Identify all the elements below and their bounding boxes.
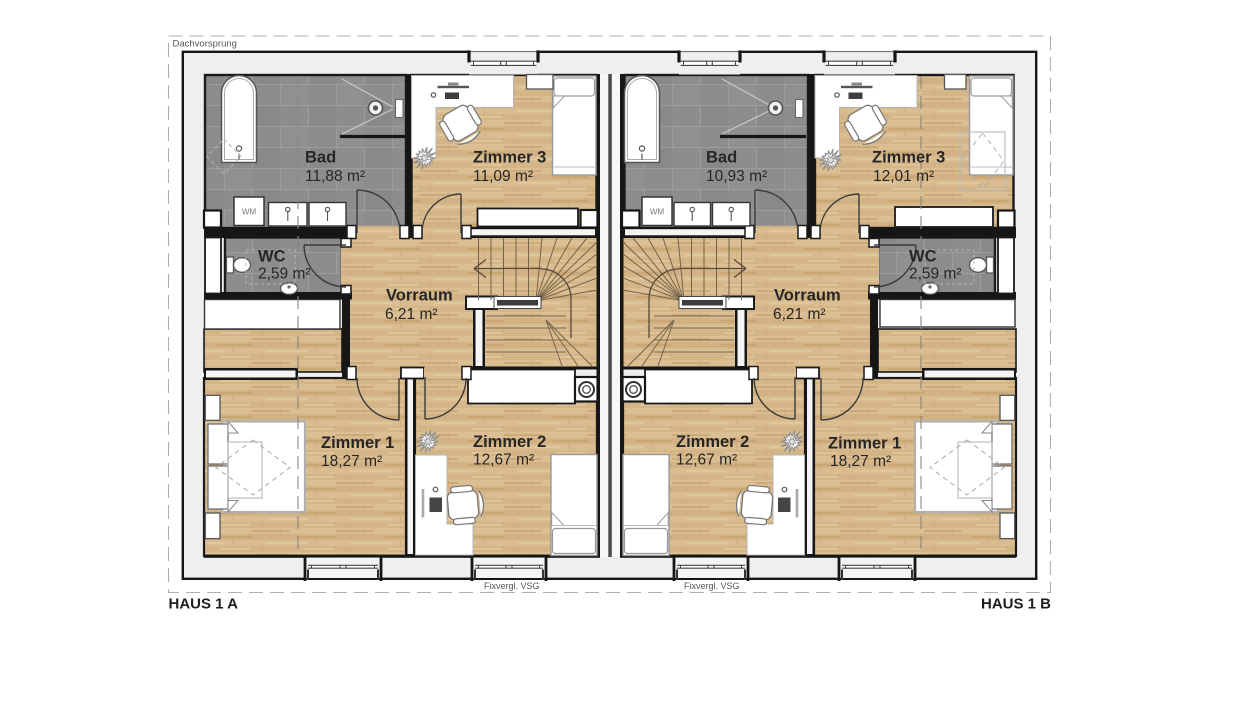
- svg-text:6,21 m²: 6,21 m²: [773, 306, 826, 323]
- svg-text:6,21 m²: 6,21 m²: [385, 306, 438, 323]
- svg-text:Zimmer 3: Zimmer 3: [872, 149, 945, 167]
- svg-text:12,67 m²: 12,67 m²: [473, 452, 534, 469]
- svg-text:Dachvorsprung: Dachvorsprung: [173, 39, 237, 50]
- svg-text:Bad: Bad: [305, 149, 336, 167]
- svg-text:Zimmer 1: Zimmer 1: [828, 435, 901, 453]
- svg-text:WM: WM: [242, 208, 257, 217]
- svg-text:2,59 m²: 2,59 m²: [909, 266, 962, 283]
- svg-text:18,27 m²: 18,27 m²: [830, 453, 891, 470]
- svg-text:2,59 m²: 2,59 m²: [258, 266, 311, 283]
- svg-text:WC: WC: [258, 248, 286, 266]
- svg-text:11,88 m²: 11,88 m²: [305, 168, 365, 185]
- svg-text:Bad: Bad: [706, 149, 737, 167]
- svg-text:Zimmer 2: Zimmer 2: [676, 433, 749, 451]
- svg-text:HAUS 1 B: HAUS 1 B: [981, 596, 1051, 613]
- svg-text:Fixvergl. VSG: Fixvergl. VSG: [684, 581, 740, 591]
- svg-text:11,09 m²: 11,09 m²: [473, 168, 533, 185]
- svg-text:HAUS 1 A: HAUS 1 A: [169, 596, 239, 613]
- svg-text:WC: WC: [909, 248, 937, 266]
- svg-text:WM: WM: [650, 208, 665, 217]
- svg-text:Fixvergl. VSG: Fixvergl. VSG: [484, 581, 540, 591]
- svg-text:12,01 m²: 12,01 m²: [873, 168, 934, 185]
- svg-text:Zimmer 3: Zimmer 3: [473, 149, 546, 167]
- svg-text:Vorraum: Vorraum: [774, 287, 841, 305]
- svg-text:Zimmer 1: Zimmer 1: [321, 434, 394, 452]
- svg-text:12,67 m²: 12,67 m²: [676, 452, 737, 469]
- svg-text:18,27 m²: 18,27 m²: [321, 453, 382, 470]
- svg-text:Zimmer 2: Zimmer 2: [473, 433, 546, 451]
- svg-text:Vorraum: Vorraum: [386, 287, 453, 305]
- svg-text:10,93 m²: 10,93 m²: [706, 168, 767, 185]
